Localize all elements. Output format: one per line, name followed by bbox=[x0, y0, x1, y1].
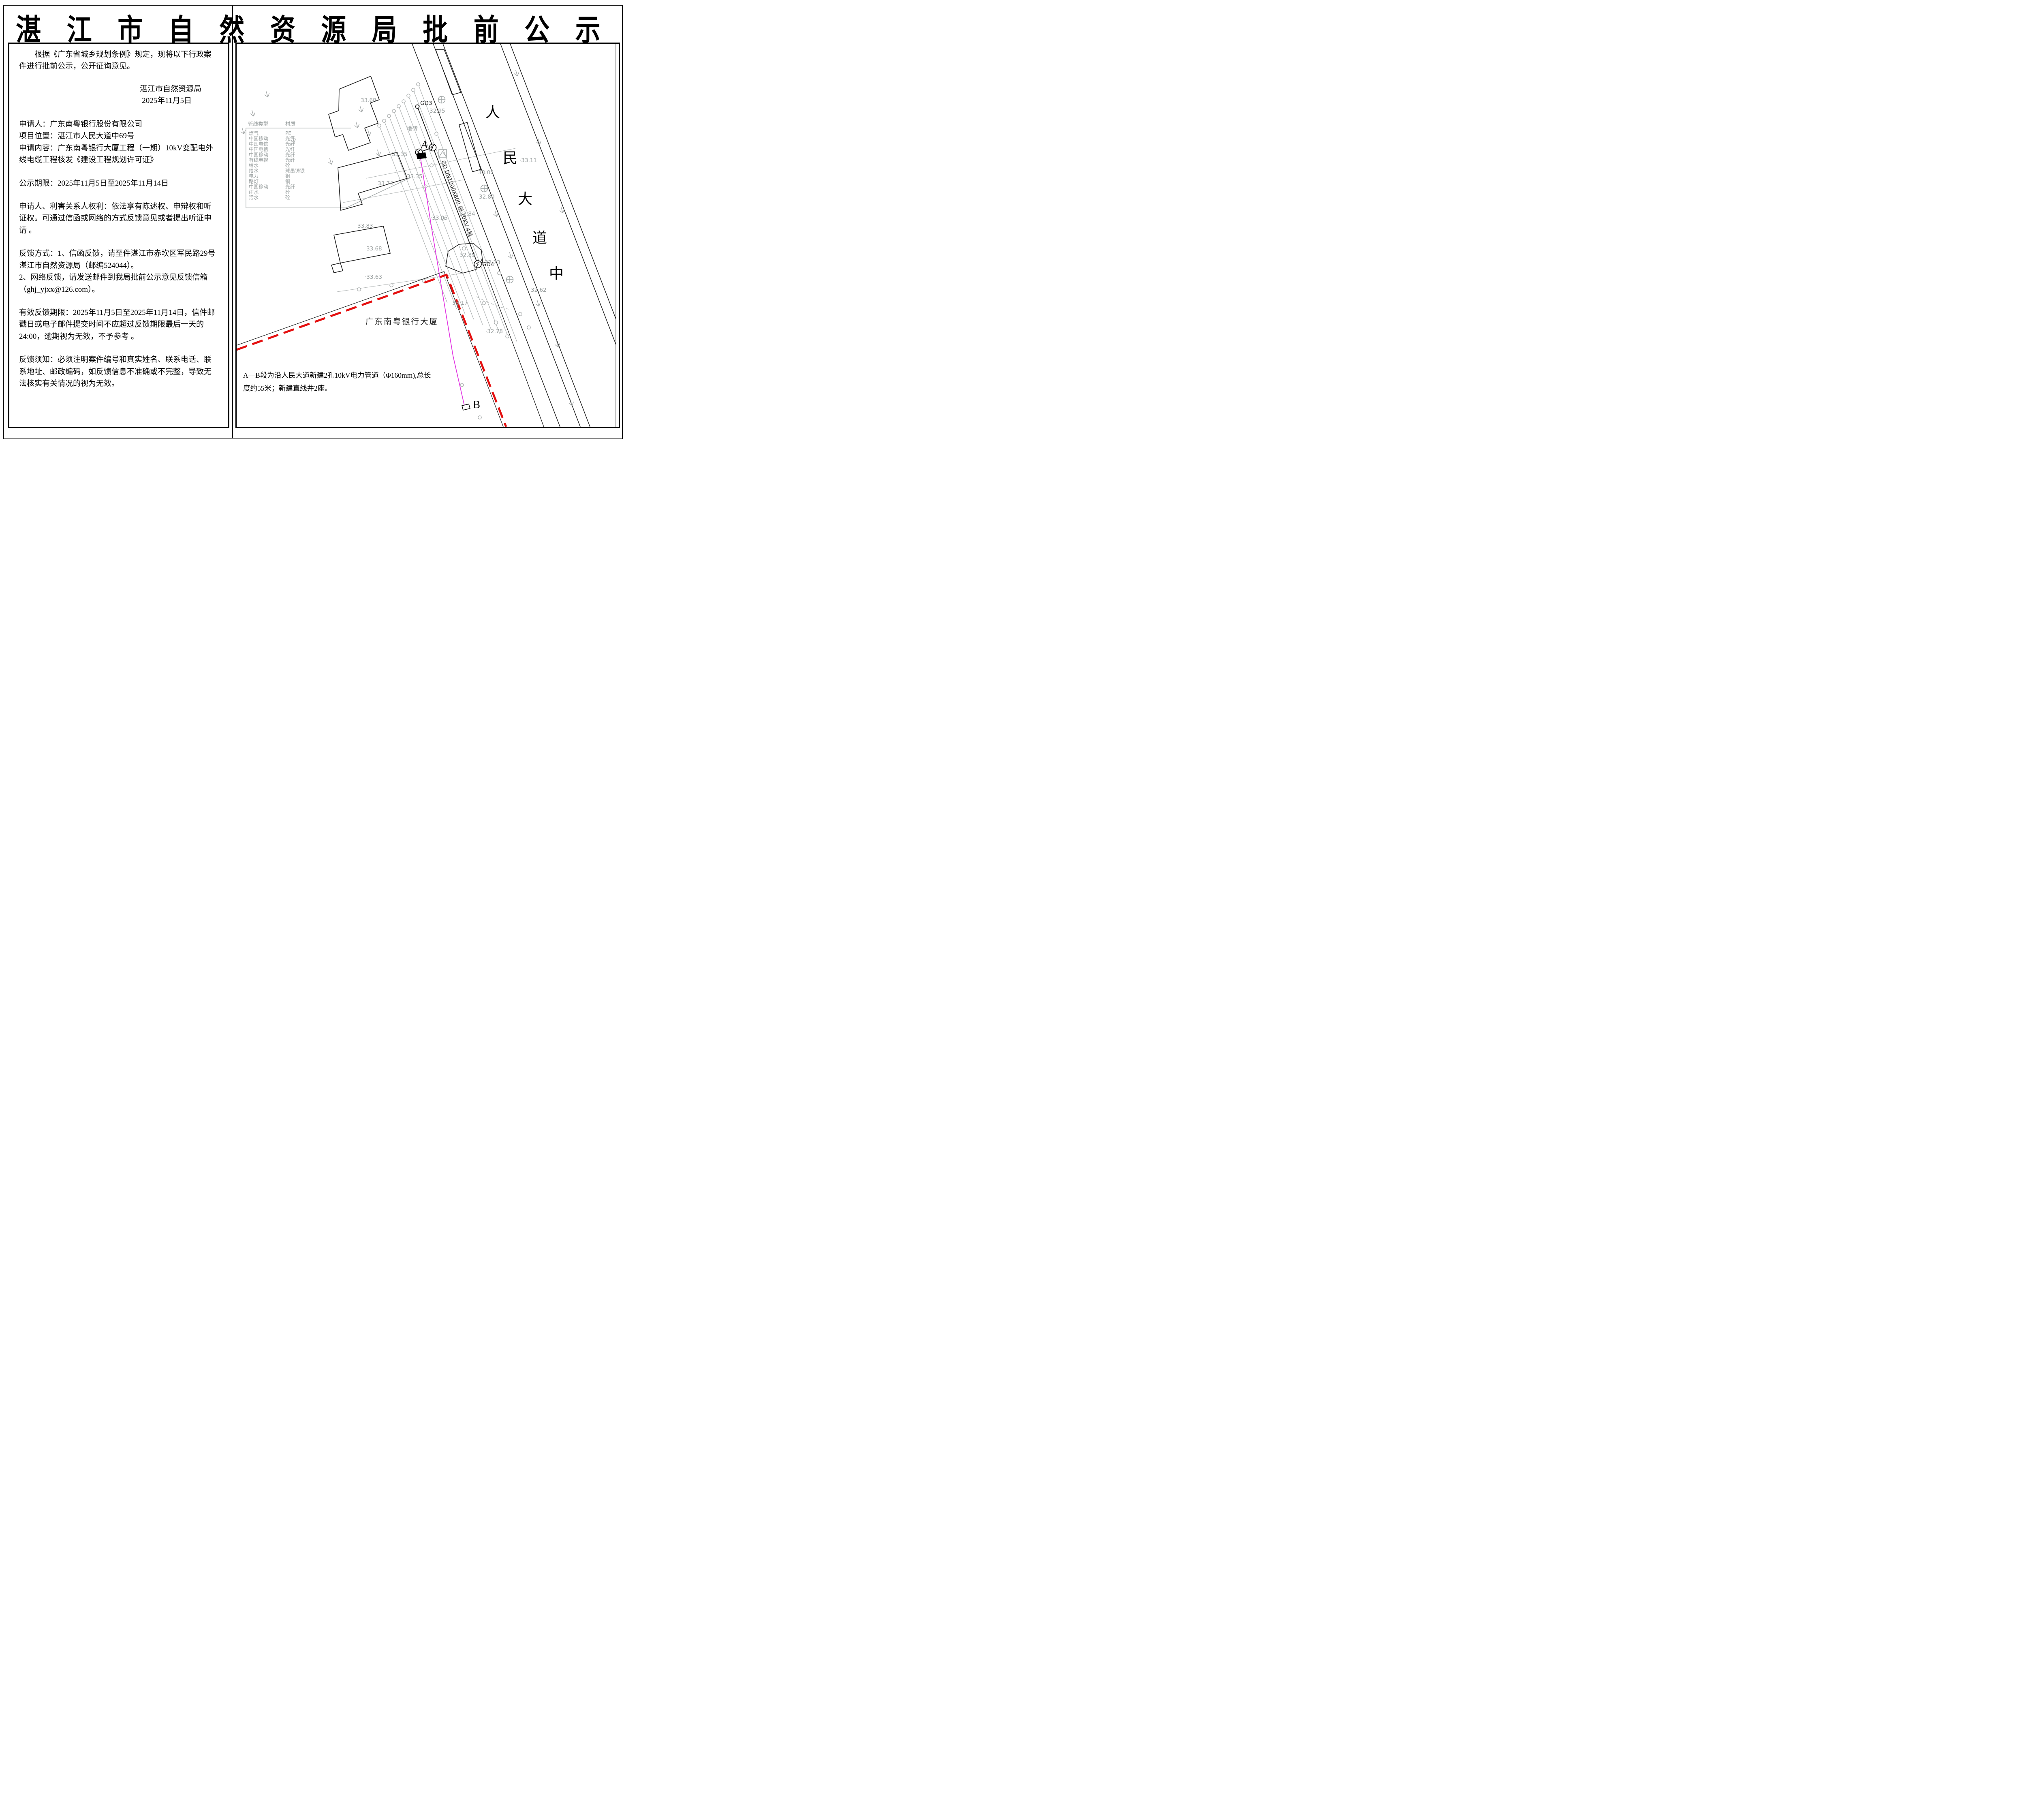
point-a-label: A bbox=[420, 139, 428, 151]
elevation-label: 32.84 bbox=[459, 211, 475, 217]
grass-arrow-icon bbox=[250, 109, 256, 117]
elevation-label: 32.89 bbox=[459, 252, 475, 259]
elevation-label: ·33.05 bbox=[430, 215, 448, 221]
utility-node-icon bbox=[378, 124, 381, 127]
road-name: 人民大道中 bbox=[485, 104, 564, 282]
legend-rows: 燃气PE中国移动光纤中国电信光纤中国电信光纤中国移动光纤有线电视光纤给水砼给水球… bbox=[249, 130, 305, 200]
elevation-label: 32.73 bbox=[485, 259, 500, 266]
grass-arrow-icon bbox=[513, 69, 520, 77]
utility-node-icon bbox=[407, 94, 410, 97]
parcel-edge-line bbox=[237, 272, 503, 427]
legend-row-material: 光纤 bbox=[285, 157, 295, 163]
utility-node-icon bbox=[527, 326, 530, 329]
building-name-label: 广东南粤银行大厦 bbox=[365, 317, 438, 326]
utility-node-icon bbox=[390, 284, 393, 287]
notice-date: 2025年11月5日 bbox=[19, 95, 218, 107]
legend-row-material: 光纤 bbox=[285, 184, 295, 190]
notice-period: 公示期限：2025年11月5日至2025年11月14日 bbox=[19, 178, 218, 189]
grass-arrow-icon bbox=[493, 210, 499, 218]
legend-row-type: 中国移动 bbox=[249, 135, 268, 141]
notice-requirements: 反馈须知：必须注明案件编号和真实姓名、联系电话、联系地址、邮政编码，如反馈信息不… bbox=[19, 354, 218, 389]
telecom-box-icon bbox=[439, 150, 447, 157]
tree-icon bbox=[506, 276, 513, 283]
legend-row-type: 路灯 bbox=[249, 178, 259, 184]
elevation-label: 33.68 bbox=[366, 246, 382, 252]
utility-node-icon bbox=[460, 383, 464, 387]
utility-node-icon bbox=[383, 119, 386, 122]
elevation-label: 33.35 bbox=[407, 173, 423, 180]
grass-arrow-icon bbox=[536, 138, 542, 145]
tree-icon bbox=[481, 185, 488, 192]
legend-row-material: 砼 bbox=[285, 195, 290, 200]
legend-row-material: 光纤 bbox=[285, 152, 295, 158]
elevation-label: ·32.78 bbox=[485, 328, 503, 335]
manhole-gd3: GD3 bbox=[416, 100, 432, 109]
road-name-char: 人 bbox=[485, 104, 500, 121]
site-map: 管线类型 材质 燃气PE中国移动光纤中国电信光纤中国电信光纤中国移动光纤有线电视… bbox=[237, 44, 619, 427]
elevation-label: ·33.63 bbox=[365, 274, 382, 280]
notice-text-panel: 根据《广东省城乡规划条例》规定，现将以下行政案件进行批前公示，公开征询意见。 湛… bbox=[8, 43, 229, 428]
notice-feedback-mail: 反馈方式：1、信函反馈，请至件湛江市赤坎区军民路29号湛江市自然资源局（邮编52… bbox=[19, 248, 218, 272]
map-annotation-line2: 度约55米；新建直线井2座。 bbox=[243, 384, 332, 392]
utility-node-icon bbox=[482, 302, 485, 305]
road-lines bbox=[412, 44, 616, 427]
legend-row-type: 中国移动 bbox=[249, 184, 268, 190]
notice-feedback-email: 2、网络反馈，请发送邮件到我局批前公示意见反馈信箱（ghj_yjxx@126.c… bbox=[19, 272, 218, 295]
power-well-b: B bbox=[462, 398, 480, 411]
grass-arrow-icon bbox=[375, 149, 382, 157]
notice-content: 申请内容：广东南粤银行大厦工程（一期）10kV变配电外线电缆工程核发《建设工程规… bbox=[19, 142, 218, 166]
notice-intro: 根据《广东省城乡规划条例》规定，现将以下行政案件进行批前公示，公开征询意见。 bbox=[19, 49, 218, 73]
elevation-label: 32.95 bbox=[430, 108, 445, 114]
legend-row-material: 砼 bbox=[285, 189, 290, 195]
legend-row-type: 有线电视 bbox=[249, 157, 268, 163]
notice-location: 项目位置：湛江市人民大道中69号 bbox=[19, 130, 218, 142]
elevation-label: 33.17 bbox=[452, 300, 468, 306]
legend-row-type: 中国移动 bbox=[249, 152, 268, 158]
gd3-label: GD3 bbox=[420, 100, 432, 107]
elevation-label: 32.80 bbox=[479, 194, 495, 200]
utility-node-icon bbox=[462, 247, 466, 250]
grass-arrow-icon bbox=[264, 90, 270, 98]
utility-node-icon bbox=[387, 114, 391, 118]
utility-node-icon bbox=[478, 416, 481, 419]
grass-arrow-icon bbox=[327, 158, 334, 165]
road-name-char: 大 bbox=[518, 191, 532, 207]
elevation-label: 33.35 bbox=[392, 151, 408, 158]
building-outlines bbox=[329, 76, 407, 273]
grass-arrow-icon bbox=[535, 299, 541, 307]
landscape-arrow-icons bbox=[240, 69, 575, 406]
legend: 管线类型 材质 燃气PE中国移动光纤中国电信光纤中国电信光纤中国移动光纤有线电视… bbox=[246, 121, 411, 208]
legend-row-type: 污水 bbox=[249, 195, 259, 200]
legend-header-type: 管线类型 bbox=[248, 121, 268, 127]
legend-row-type: 燃气 bbox=[249, 130, 259, 136]
legend-row-type: 给水 bbox=[249, 168, 259, 173]
notice-rights: 申请人、利害关系人权利：依法享有陈述权、申辩权和听证权。可通过信函或网络的方式反… bbox=[19, 201, 218, 236]
utility-node-icon bbox=[435, 132, 438, 135]
point-b-label: B bbox=[473, 398, 480, 411]
road-name-char: 道 bbox=[532, 230, 547, 246]
legend-row-material: 光纤 bbox=[285, 147, 295, 152]
utility-node-icon bbox=[402, 100, 405, 103]
notice-page: 湛 江 市 自 然 资 源 局 批 前 公 示 根据《广东省城乡规划条例》规定，… bbox=[0, 0, 626, 443]
utility-lines bbox=[379, 84, 517, 342]
utility-node-icon bbox=[397, 105, 400, 108]
tree-icon bbox=[438, 96, 445, 103]
utility-node-icon bbox=[498, 272, 501, 275]
utility-node-icon bbox=[430, 164, 433, 167]
grass-arrow-icon bbox=[354, 121, 360, 129]
legend-header-material: 材质 bbox=[285, 121, 295, 127]
utility-node-icon bbox=[357, 288, 361, 291]
notice-valid-period: 有效反馈期限：2025年11月5日至2025年11月14日，信件邮戳日或电子邮件… bbox=[19, 307, 218, 342]
elevation-label: 32.62 bbox=[531, 287, 547, 293]
grass-arrow-icon bbox=[568, 399, 575, 406]
grass-arrow-icon bbox=[358, 105, 364, 113]
legend-row-material: 铜 bbox=[285, 178, 290, 184]
grass-arrow-icon bbox=[240, 127, 246, 135]
utility-node-icon bbox=[392, 109, 395, 113]
legend-row-type: 给水 bbox=[249, 163, 259, 168]
grass-arrow-icon bbox=[507, 252, 514, 259]
surface-label: 地砖 bbox=[407, 126, 418, 132]
column-divider-line bbox=[232, 5, 233, 438]
utility-node-circles bbox=[357, 83, 530, 419]
dashed-survey-arc bbox=[477, 297, 511, 310]
legend-row-material: 铜 bbox=[285, 173, 290, 179]
legend-row-material: 砼 bbox=[285, 163, 290, 168]
grass-arrow-icon bbox=[559, 206, 565, 214]
utility-node-icon bbox=[494, 321, 498, 324]
utility-node-icon bbox=[519, 312, 522, 316]
elevation-label: 33.02 bbox=[478, 169, 494, 176]
utility-node-icon bbox=[412, 88, 415, 92]
elevation-labels: 33.6832.9533.3533.3533.74·33.0533.02·33.… bbox=[357, 97, 547, 335]
elevation-label: 33.83 bbox=[357, 223, 373, 229]
survey-line bbox=[343, 180, 463, 203]
road-name-char: 中 bbox=[549, 265, 564, 282]
legend-row-material: PE bbox=[285, 130, 291, 136]
site-map-panel: 管线类型 材质 燃气PE中国移动光纤中国电信光纤中国电信光纤中国移动光纤有线电视… bbox=[235, 43, 620, 428]
legend-row-type: 雨水 bbox=[249, 189, 259, 195]
utility-node-icon bbox=[417, 83, 420, 86]
utility-node-icon bbox=[506, 335, 509, 338]
notice-signature: 湛江市自然资源局 bbox=[19, 83, 218, 95]
map-annotation-line1: A—B段为沿人民大道新建2孔10kV电力管道（Φ160mm),总长 bbox=[243, 371, 431, 379]
elevation-label: ·33.11 bbox=[519, 157, 537, 164]
legend-row-type: 中国电信 bbox=[249, 141, 268, 147]
legend-row-type: 中国电信 bbox=[249, 146, 268, 152]
road-name-char: 民 bbox=[503, 150, 517, 167]
legend-row-material: 球墨铸铁 bbox=[285, 167, 305, 173]
elevation-label: 33.74 bbox=[378, 180, 393, 187]
elevation-label: 33.68 bbox=[361, 97, 376, 104]
notice-applicant: 申请人：广东南粤银行股份有限公司 bbox=[19, 118, 218, 130]
legend-row-type: 电力 bbox=[249, 173, 259, 179]
